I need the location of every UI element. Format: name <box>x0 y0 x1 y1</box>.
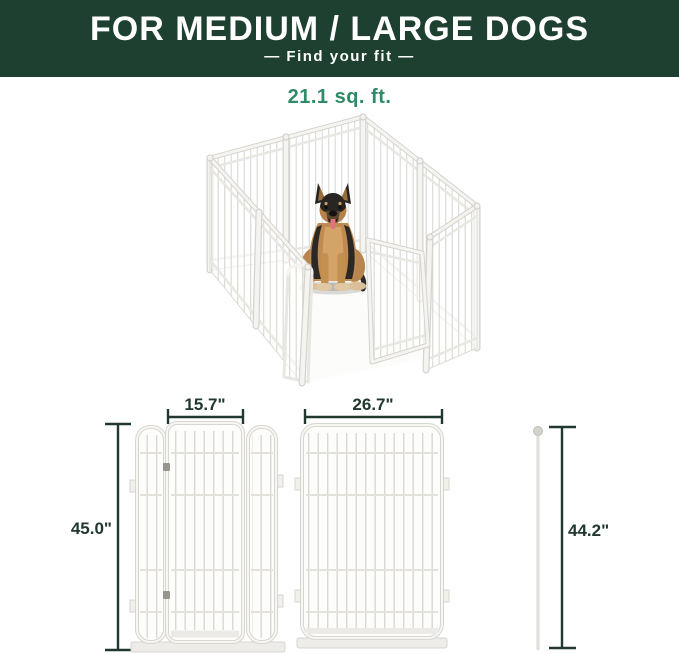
width-label-267: 26.7" <box>352 395 393 414</box>
height-dimension-45: 45.0" <box>71 424 131 650</box>
wide-panel-diagram <box>295 425 449 648</box>
product-infographic: FOR MEDIUM / LARGE DOGS — Find your fit … <box>0 0 679 654</box>
open-gate-panel <box>368 240 428 362</box>
width-dimension-267: 26.7" <box>305 395 442 424</box>
ground-stake-illustration <box>534 427 543 651</box>
dimension-diagrams: 45.0" <box>0 390 679 654</box>
width-label-157: 15.7" <box>184 395 225 414</box>
door-panel-diagram <box>130 423 285 652</box>
door-hinge <box>163 591 170 599</box>
header-subtitle: — Find your fit — <box>0 48 679 65</box>
playpen-illustration <box>150 105 530 395</box>
width-dimension-157: 15.7" <box>168 395 243 424</box>
header-banner: FOR MEDIUM / LARGE DOGS — Find your fit … <box>0 0 679 77</box>
height-dimension-442: 44.2" <box>549 427 609 648</box>
door-hinge <box>163 463 170 471</box>
height-label-45: 45.0" <box>71 519 112 538</box>
height-label-442: 44.2" <box>568 521 609 540</box>
page-title: FOR MEDIUM / LARGE DOGS <box>0 11 679 47</box>
